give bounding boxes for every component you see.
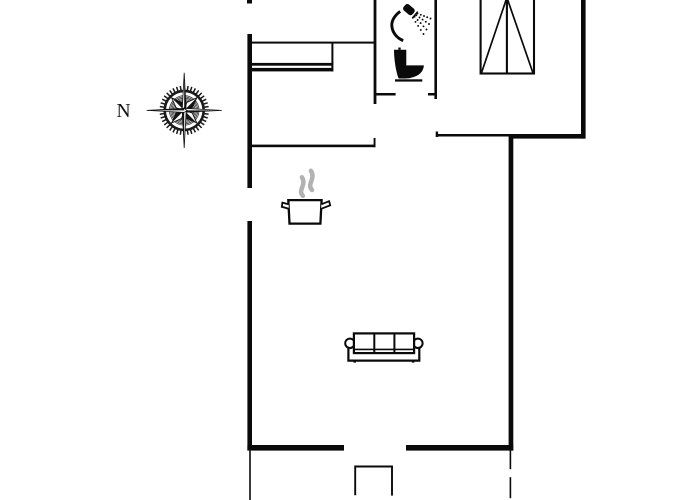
svg-text:N: N bbox=[117, 101, 131, 122]
